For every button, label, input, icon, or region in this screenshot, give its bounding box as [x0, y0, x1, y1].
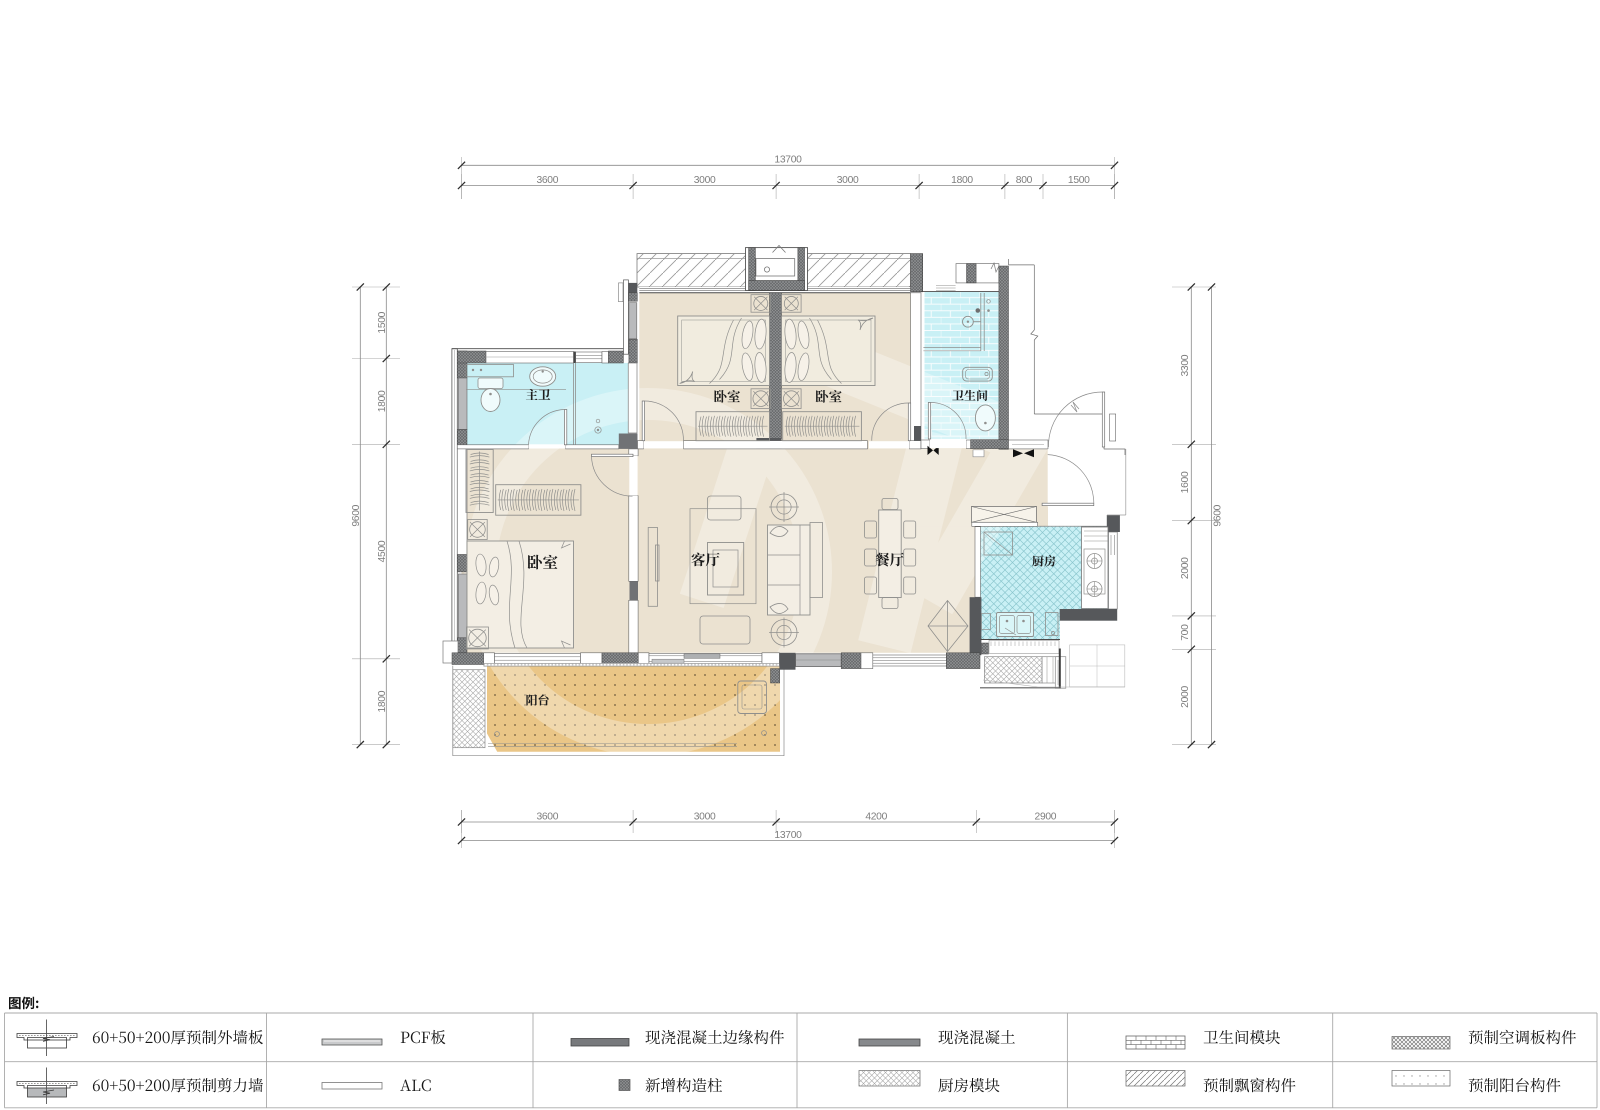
svg-text:1800: 1800 [377, 690, 388, 712]
svg-text:1800: 1800 [377, 390, 388, 412]
svg-text:1600: 1600 [1180, 471, 1191, 493]
svg-text:2000: 2000 [1180, 557, 1191, 579]
svg-text:2000: 2000 [1180, 686, 1191, 708]
svg-text:2900: 2900 [1035, 811, 1057, 822]
svg-text:9600: 9600 [1213, 504, 1224, 526]
svg-text:3000: 3000 [694, 175, 716, 186]
svg-text:3000: 3000 [694, 811, 716, 822]
svg-text:700: 700 [1180, 624, 1191, 641]
svg-text:1500: 1500 [1068, 175, 1090, 186]
svg-text:4500: 4500 [377, 540, 388, 562]
svg-text:3300: 3300 [1180, 354, 1191, 376]
svg-text:1800: 1800 [951, 175, 973, 186]
svg-text:3600: 3600 [536, 175, 558, 186]
svg-text:3000: 3000 [837, 175, 859, 186]
svg-text:800: 800 [1016, 175, 1033, 186]
svg-text:9600: 9600 [351, 504, 362, 526]
svg-text:1500: 1500 [377, 311, 388, 333]
svg-text:4200: 4200 [865, 811, 887, 822]
svg-text:13700: 13700 [774, 155, 802, 166]
svg-text:13700: 13700 [774, 830, 802, 841]
svg-text:3600: 3600 [536, 811, 558, 822]
